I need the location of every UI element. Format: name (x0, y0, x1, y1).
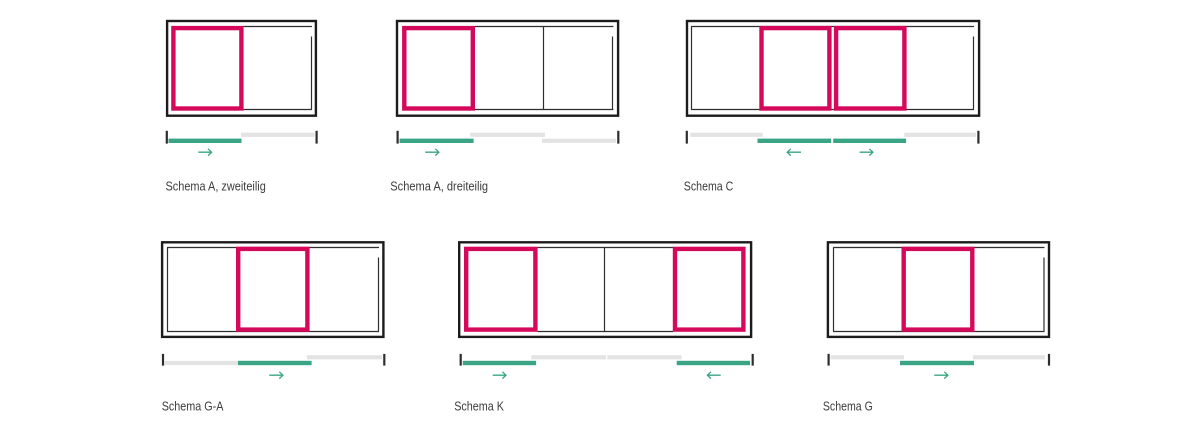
svg-text:Schema A, dreiteilig: Schema A, dreiteilig (390, 179, 488, 193)
svg-text:Schema K: Schema K (454, 399, 504, 413)
svg-text:Schema G-A: Schema G-A (162, 399, 224, 413)
svg-text:Schema G: Schema G (823, 399, 873, 413)
svg-text:Schema C: Schema C (684, 179, 734, 193)
svg-text:Schema A, zweiteilig: Schema A, zweiteilig (166, 179, 266, 193)
